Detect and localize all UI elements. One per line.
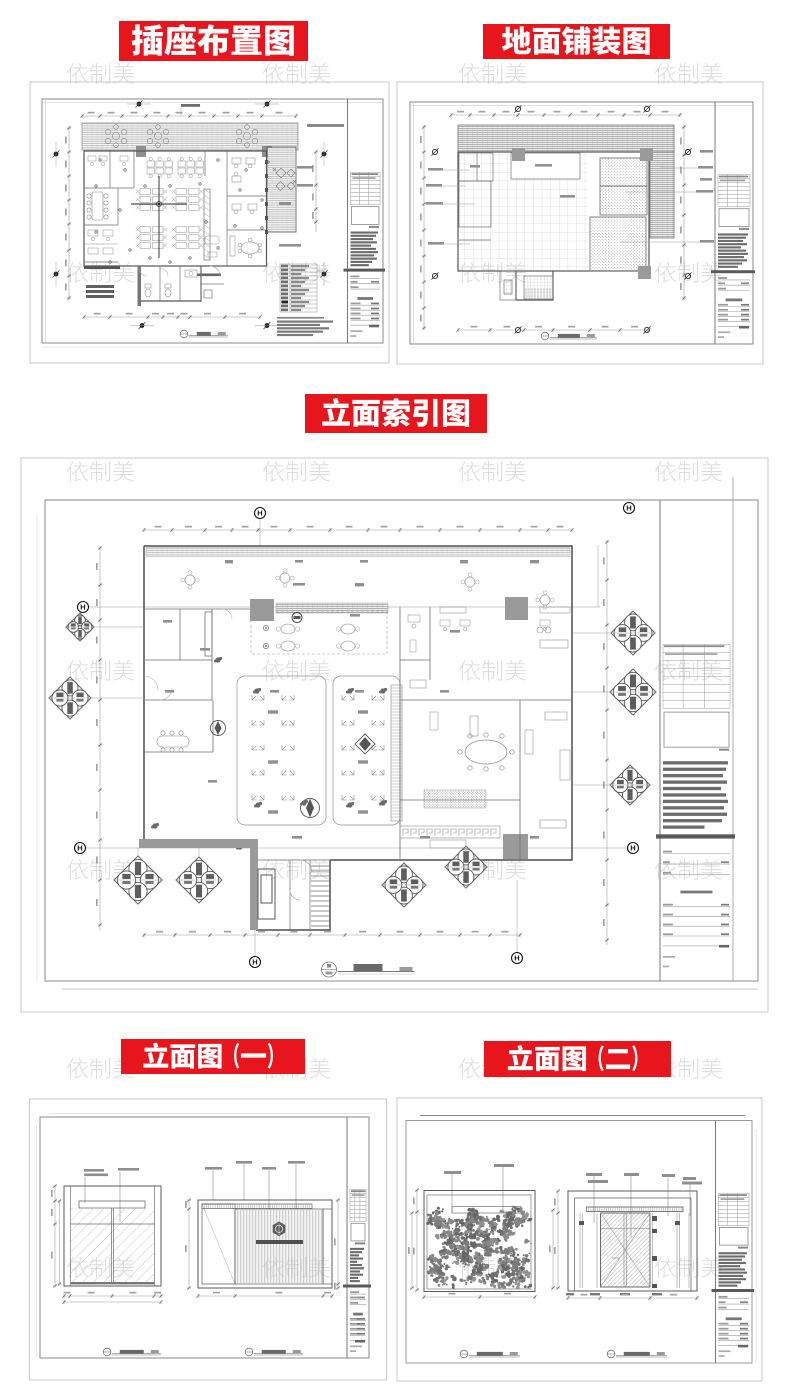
svg-text:H: H: [514, 954, 519, 963]
svg-text:H: H: [252, 958, 257, 967]
svg-text:H: H: [77, 844, 82, 853]
svg-text:H: H: [630, 844, 635, 853]
svg-text:H: H: [626, 504, 631, 513]
svg-text:H: H: [80, 603, 85, 612]
svg-text:H: H: [257, 509, 262, 518]
